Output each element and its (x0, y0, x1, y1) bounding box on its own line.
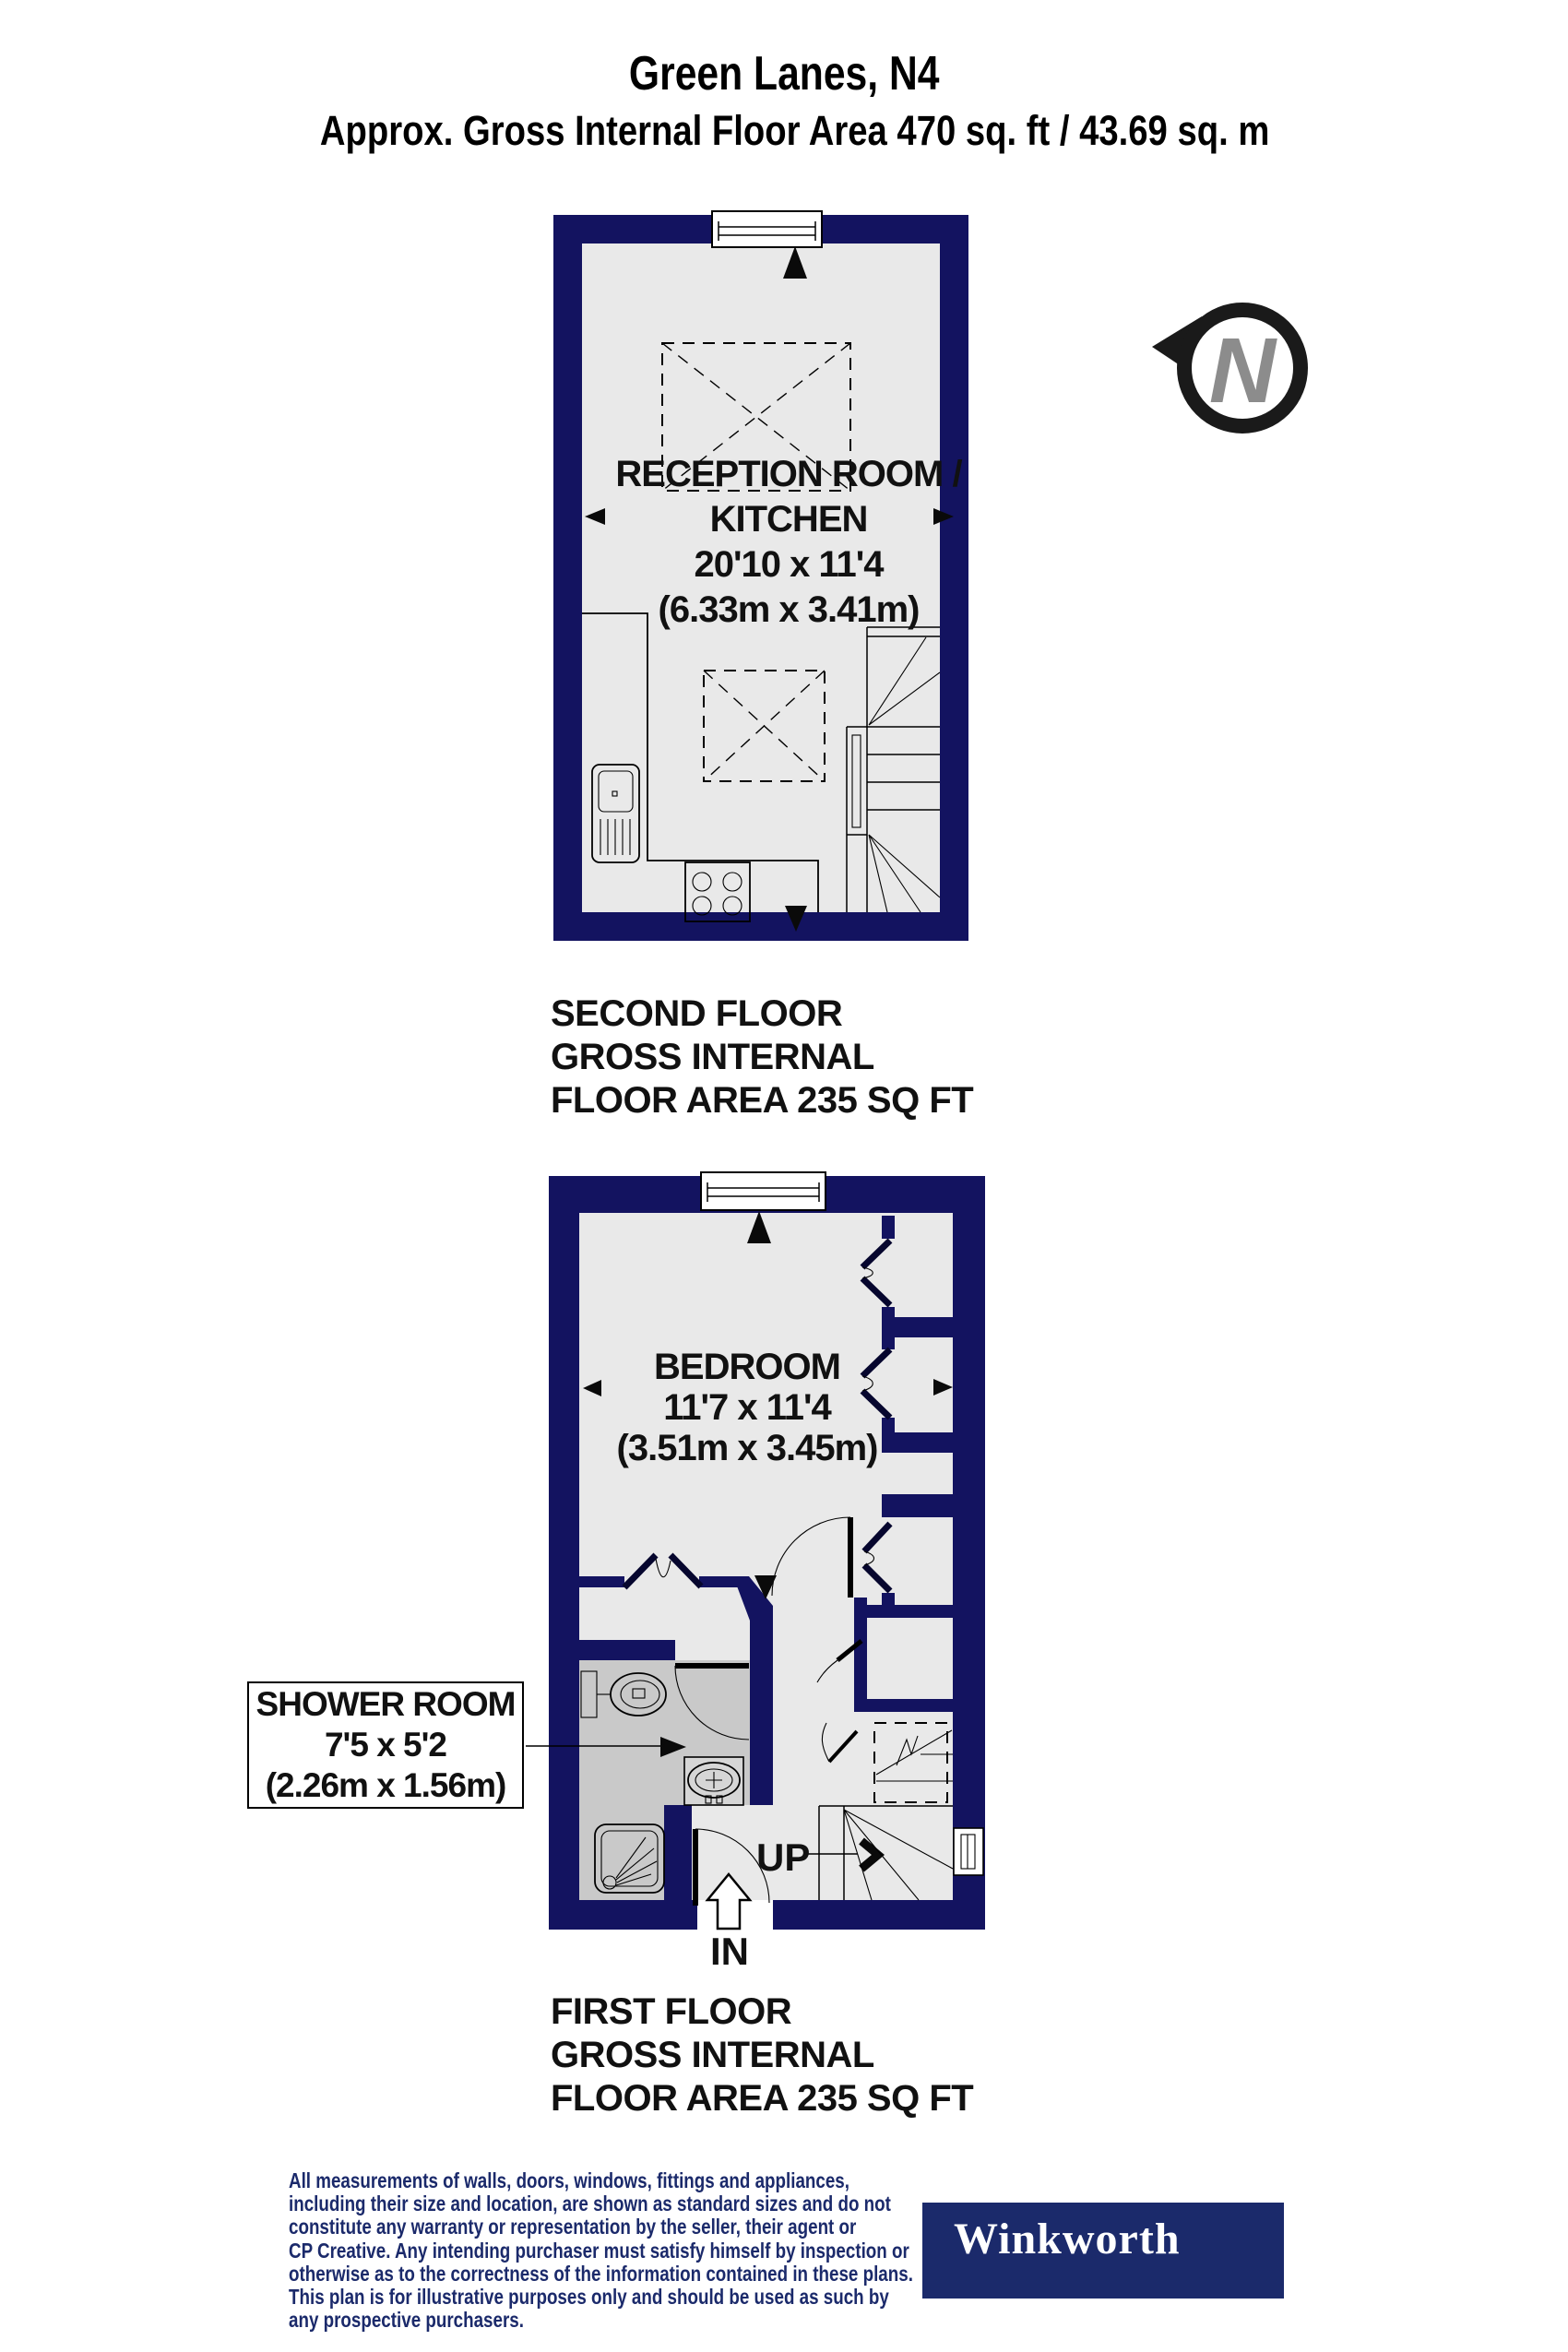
disclaimer-line: All measurements of walls, doors, window… (289, 2169, 849, 2192)
disclaimer-line: This plan is for illustrative purposes o… (289, 2286, 889, 2309)
page-title-text: Green Lanes, N4 (629, 46, 940, 101)
room-dims-imperial: 7'5 x 5'2 (249, 1725, 522, 1765)
room-name: BEDROOM (563, 1347, 932, 1387)
room-dims-metric: (6.33m x 3.41m) (600, 588, 978, 633)
room-name-line2: KITCHEN (600, 497, 978, 542)
caption-line: FIRST FLOOR (551, 1990, 973, 2034)
page-title: Green Lanes, N4 (0, 46, 1568, 101)
room-dims-metric: (2.26m x 1.56m) (249, 1765, 522, 1806)
reception-room-label: RECEPTION ROOM / KITCHEN 20'10 x 11'4 (6… (600, 452, 978, 633)
page-subtitle: Approx. Gross Internal Floor Area 470 sq… (0, 107, 1568, 155)
caption-line: FLOOR AREA 235 SQ FT (551, 1079, 973, 1123)
first-floor-caption: FIRST FLOOR GROSS INTERNAL FLOOR AREA 23… (551, 1990, 973, 2120)
up-label: UP (756, 1835, 810, 1880)
window-icon (712, 211, 822, 247)
disclaimer-line: any prospective purchasers. (289, 2309, 524, 2332)
room-name: SHOWER ROOM (249, 1684, 522, 1725)
room-dims-imperial: 11'7 x 11'4 (563, 1387, 932, 1428)
basin-icon (684, 1757, 743, 1805)
floorplan-page: N (0, 0, 1568, 2352)
disclaimer-line: including their size and location, are s… (289, 2192, 891, 2215)
meter-box-icon (954, 1828, 983, 1875)
second-floor-caption: SECOND FLOOR GROSS INTERNAL FLOOR AREA 2… (551, 992, 973, 1123)
disclaimer-line: constitute any warranty or representatio… (289, 2215, 856, 2239)
window-icon (701, 1172, 826, 1210)
shower-room-label: SHOWER ROOM 7'5 x 5'2 (2.26m x 1.56m) (247, 1681, 524, 1809)
brand-name: Winkworth (954, 2214, 1181, 2264)
winkworth-logo: Winkworth (922, 2203, 1284, 2299)
in-label: IN (707, 1930, 752, 1974)
page-subtitle-text: Approx. Gross Internal Floor Area 470 sq… (320, 107, 1270, 155)
first-floor-plan (526, 1172, 985, 1930)
room-dims-imperial: 20'10 x 11'4 (600, 542, 978, 588)
bedroom-label: BEDROOM 11'7 x 11'4 (3.51m x 3.45m) (563, 1347, 932, 1468)
caption-line: FLOOR AREA 235 SQ FT (551, 2077, 973, 2120)
caption-line: SECOND FLOOR (551, 992, 973, 1036)
room-dims-metric: (3.51m x 3.45m) (563, 1428, 932, 1468)
disclaimer-line: CP Creative. Any intending purchaser mus… (289, 2239, 909, 2263)
room-name-line1: RECEPTION ROOM / (600, 452, 978, 497)
caption-line: GROSS INTERNAL (551, 1036, 973, 1079)
disclaimer-line: otherwise as to the correctness of the i… (289, 2263, 913, 2286)
compass-north-letter: N (1209, 319, 1277, 422)
north-compass: N (1152, 310, 1301, 426)
caption-line: GROSS INTERNAL (551, 2034, 973, 2077)
